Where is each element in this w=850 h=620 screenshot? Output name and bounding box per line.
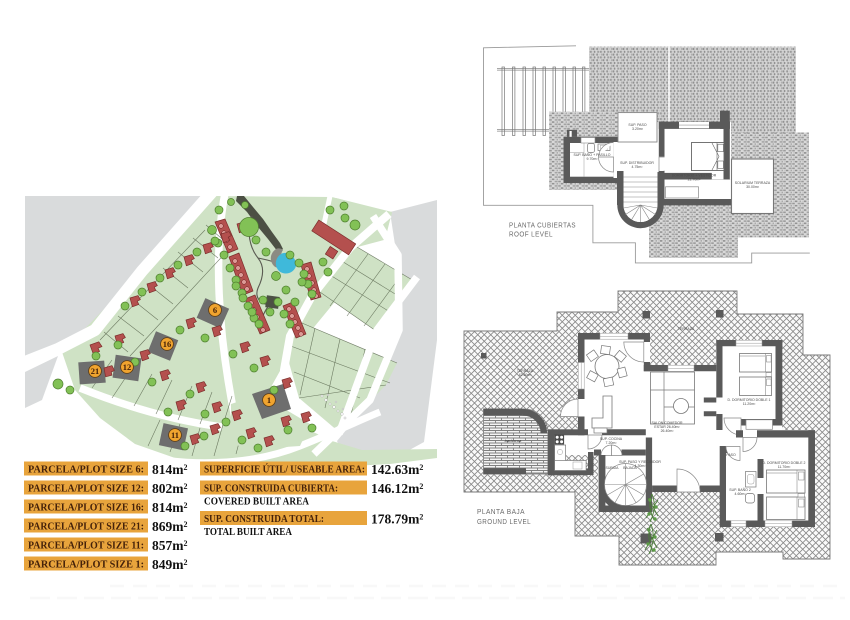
svg-text:814m2: 814m2: [152, 462, 188, 477]
svg-text:PLANTA CUBIERTAS: PLANTA CUBIERTAS: [509, 221, 576, 230]
svg-text:6: 6: [213, 305, 217, 315]
svg-text:BAJADA: BAJADA: [623, 466, 637, 470]
svg-text:142.63m2: 142.63m2: [371, 462, 423, 477]
svg-text:849m2: 849m2: [152, 557, 188, 572]
svg-text:SUPERFICIE ÚTIL/ USEABLE AREA:: SUPERFICIE ÚTIL/ USEABLE AREA:: [204, 464, 365, 476]
svg-text:1: 1: [267, 395, 271, 405]
svg-text:PARCELA/PLOT SIZE 1:: PARCELA/PLOT SIZE 1:: [28, 560, 144, 571]
svg-text:PARCELA/PLOT SIZE 6:: PARCELA/PLOT SIZE 6:: [28, 465, 144, 476]
svg-text:3.20m²: 3.20m²: [632, 127, 644, 131]
svg-text:PARCELA/PLOT SIZE 11:: PARCELA/PLOT SIZE 11:: [28, 541, 144, 552]
svg-text:21: 21: [91, 366, 100, 376]
svg-text:7.20m²: 7.20m²: [606, 441, 618, 445]
svg-text:26.40m²: 26.40m²: [661, 429, 675, 433]
svg-text:SUP. CONSTRUIDA CUBIERTA:: SUP. CONSTRUIDA CUBIERTA:: [204, 484, 338, 495]
svg-text:COVERED BUILT AREA: COVERED BUILT AREA: [204, 497, 309, 508]
svg-text:11: 11: [171, 430, 179, 440]
svg-text:PASO: PASO: [726, 453, 736, 457]
svg-text:SUBIDA: SUBIDA: [605, 466, 619, 470]
svg-text:16: 16: [163, 339, 172, 349]
svg-text:4.60m²: 4.60m²: [735, 492, 747, 496]
svg-text:PARCELA/PLOT SIZE 21:: PARCELA/PLOT SIZE 21:: [28, 522, 144, 533]
svg-text:857m2: 857m2: [152, 538, 188, 553]
svg-text:TERRAZA: TERRAZA: [678, 327, 695, 331]
svg-text:barbacoa: barbacoa: [505, 438, 522, 443]
svg-text:SUP. CONSTRUIDA TOTAL:: SUP. CONSTRUIDA TOTAL:: [204, 514, 324, 525]
svg-text:146.12m2: 146.12m2: [371, 481, 423, 496]
svg-text:30.00m²: 30.00m²: [746, 185, 760, 189]
svg-text:11.70m²: 11.70m²: [778, 465, 791, 469]
svg-text:PARCELA/PLOT SIZE 16:: PARCELA/PLOT SIZE 16:: [28, 503, 144, 514]
svg-text:178.79m2: 178.79m2: [371, 512, 423, 527]
svg-text:802m2: 802m2: [152, 481, 188, 496]
svg-text:PARCELA/PLOT SIZE 12:: PARCELA/PLOT SIZE 12:: [28, 484, 144, 495]
svg-text:GROUND LEVEL: GROUND LEVEL: [477, 517, 531, 526]
svg-text:4.75m²: 4.75m²: [632, 165, 644, 169]
svg-text:869m2: 869m2: [152, 519, 188, 534]
svg-text:TOTAL BUILT AREA: TOTAL BUILT AREA: [204, 527, 292, 538]
svg-text:814m2: 814m2: [152, 500, 188, 515]
svg-text:21.70m²: 21.70m²: [688, 178, 702, 182]
svg-text:ROOF LEVEL: ROOF LEVEL: [509, 230, 553, 239]
svg-text:PLANTA BAJA: PLANTA BAJA: [477, 507, 525, 516]
svg-text:11.20m²: 11.20m²: [743, 402, 756, 406]
svg-text:12: 12: [123, 362, 132, 372]
svg-text:9.70m²: 9.70m²: [587, 157, 599, 161]
svg-text:42.60m²: 42.60m²: [519, 373, 533, 377]
